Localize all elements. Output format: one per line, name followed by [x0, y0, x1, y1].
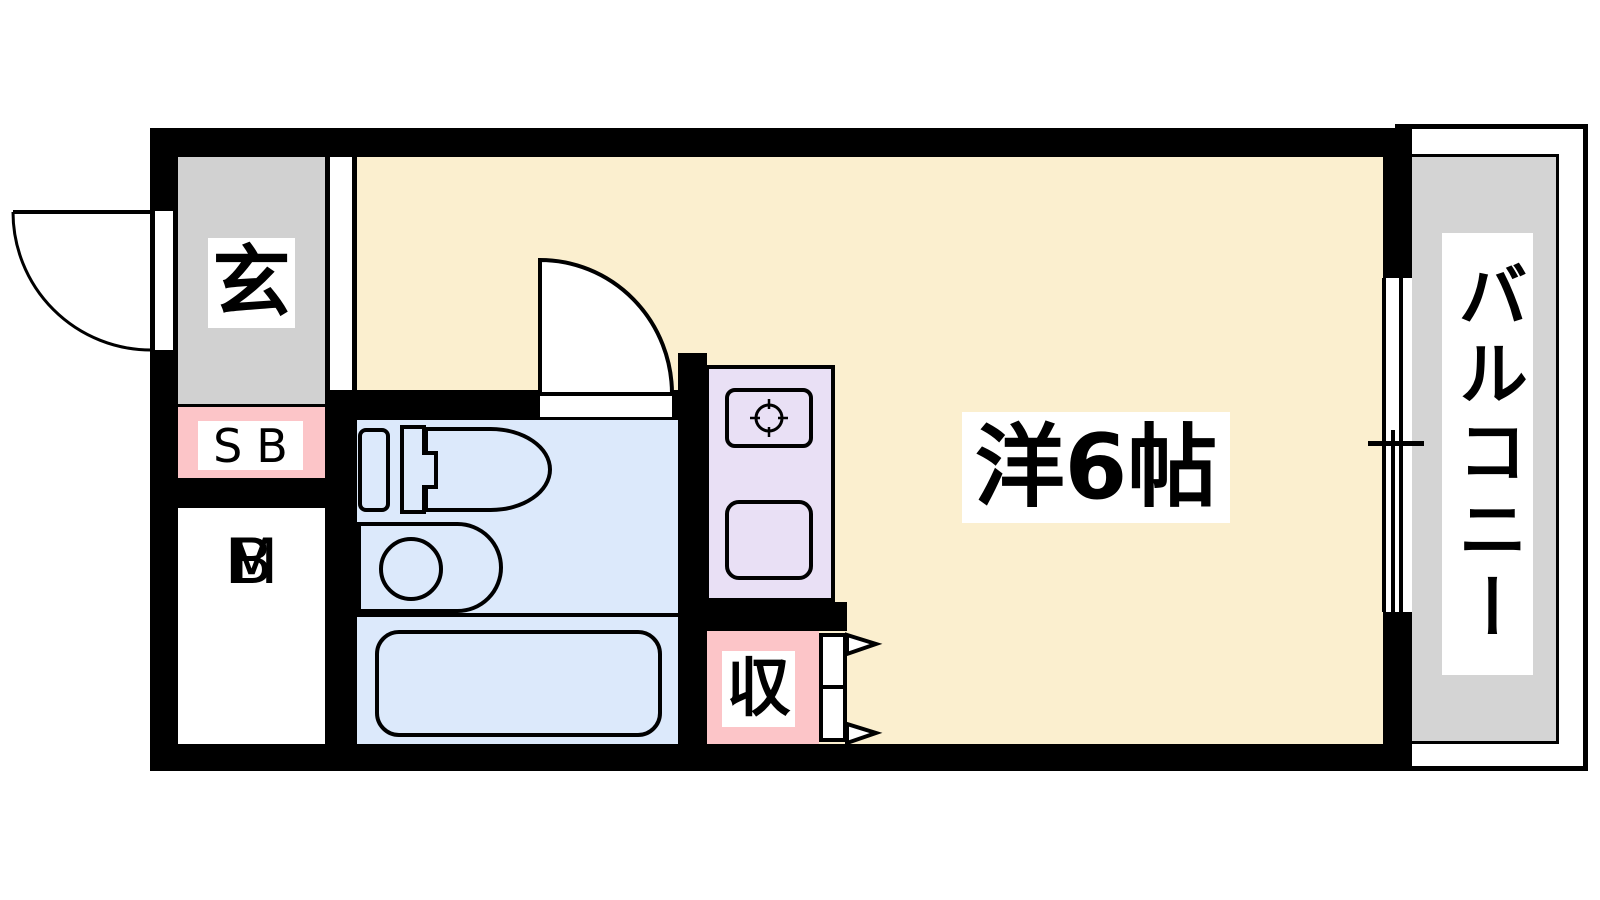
window-pane-line — [1391, 430, 1395, 612]
storage-label: 収 — [722, 651, 795, 727]
bathroom-divider — [357, 613, 678, 617]
entrance-step-edge — [352, 157, 357, 390]
wall-segment — [325, 390, 357, 744]
entrance-door-swing-icon — [13, 212, 151, 350]
entrance-door-jamb — [150, 211, 155, 350]
toilet-icon — [424, 427, 552, 512]
entrance-door-jamb — [173, 211, 178, 350]
main-room-label: 洋6帖 — [962, 412, 1230, 523]
window-center-tick — [1368, 441, 1424, 446]
floor-plan: 玄 SB M B 収 洋6帖 バルコニー — [0, 0, 1600, 900]
bathtub-icon — [375, 630, 662, 737]
wall-right — [1383, 128, 1412, 278]
wall-segment — [678, 602, 847, 631]
wall-right — [1383, 612, 1412, 771]
entrance-step-edge — [325, 157, 330, 390]
wall-bottom — [150, 744, 1412, 771]
kitchen-sink-icon — [725, 500, 813, 580]
wall-segment — [678, 353, 707, 744]
meter-box-label-line2: B — [230, 527, 273, 597]
wall-top — [150, 128, 1412, 157]
balcony-label: バルコニー — [1442, 233, 1533, 675]
washbasin-bowl-icon — [379, 537, 443, 601]
shoe-box-label: SB — [198, 421, 303, 470]
stove-icon — [725, 388, 813, 448]
bathroom-door-opening — [540, 394, 672, 417]
entrance-label: 玄 — [208, 238, 295, 328]
toilet-cistern-icon — [358, 428, 390, 512]
wall-segment — [178, 478, 325, 508]
closet-door-divider — [819, 685, 847, 689]
